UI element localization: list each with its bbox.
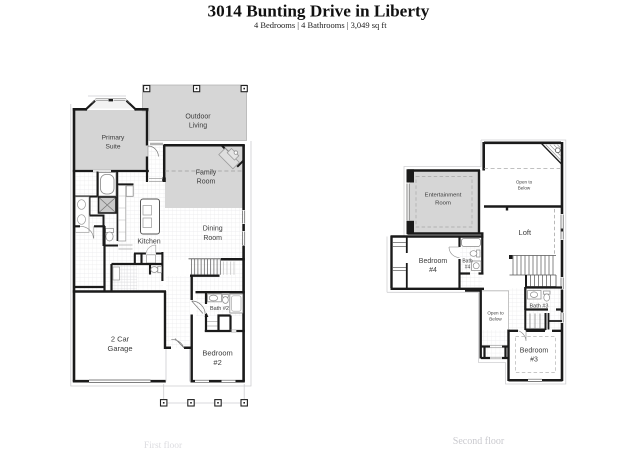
svg-text:3014 Bunting Drive in Liberty: 3014 Bunting Drive in Liberty bbox=[208, 1, 430, 20]
svg-text:4 Bedrooms | 4 Bathrooms | 3,0: 4 Bedrooms | 4 Bathrooms | 3,049 sq ft bbox=[254, 21, 387, 30]
svg-text:Kitchen: Kitchen bbox=[137, 239, 160, 246]
svg-text:Bath #3: Bath #3 bbox=[530, 304, 549, 310]
svg-text:Outdoor: Outdoor bbox=[185, 114, 211, 121]
svg-text:2 Car: 2 Car bbox=[111, 335, 130, 344]
svg-text:Suite: Suite bbox=[105, 144, 120, 151]
svg-text:Second floor: Second floor bbox=[453, 436, 505, 447]
svg-text:Room: Room bbox=[435, 200, 451, 206]
svg-text:Bath #2: Bath #2 bbox=[210, 306, 229, 312]
svg-text:Garage: Garage bbox=[107, 344, 132, 353]
svg-text:Open to: Open to bbox=[516, 180, 533, 185]
svg-text:Family: Family bbox=[196, 170, 217, 177]
svg-text:First floor: First floor bbox=[144, 440, 183, 451]
svg-text:Bedroom: Bedroom bbox=[520, 348, 549, 355]
svg-text:Bedroom: Bedroom bbox=[202, 349, 232, 358]
svg-text:Dining: Dining bbox=[203, 226, 223, 233]
svg-text:Primary: Primary bbox=[102, 135, 125, 142]
svg-text:Room: Room bbox=[197, 179, 216, 186]
svg-text:#4: #4 bbox=[465, 265, 471, 271]
svg-text:#4: #4 bbox=[429, 267, 437, 274]
svg-text:#3: #3 bbox=[530, 357, 538, 364]
svg-text:Living: Living bbox=[189, 123, 207, 130]
svg-text:Below: Below bbox=[518, 186, 531, 191]
svg-text:Entertainment: Entertainment bbox=[425, 192, 462, 198]
svg-text:Loft: Loft bbox=[519, 228, 532, 237]
svg-text:Below: Below bbox=[489, 317, 502, 322]
svg-text:Bedroom: Bedroom bbox=[419, 258, 448, 265]
svg-text:Open to: Open to bbox=[487, 311, 504, 316]
svg-text:#2: #2 bbox=[213, 358, 221, 367]
svg-text:Room: Room bbox=[203, 235, 222, 242]
